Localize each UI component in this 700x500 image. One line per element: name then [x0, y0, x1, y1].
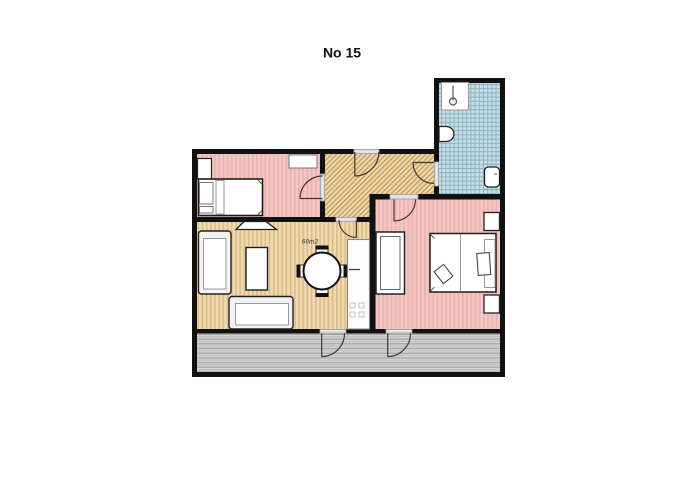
svg-text:60m2: 60m2: [302, 239, 319, 246]
svg-text:No 15: No 15: [323, 45, 361, 61]
